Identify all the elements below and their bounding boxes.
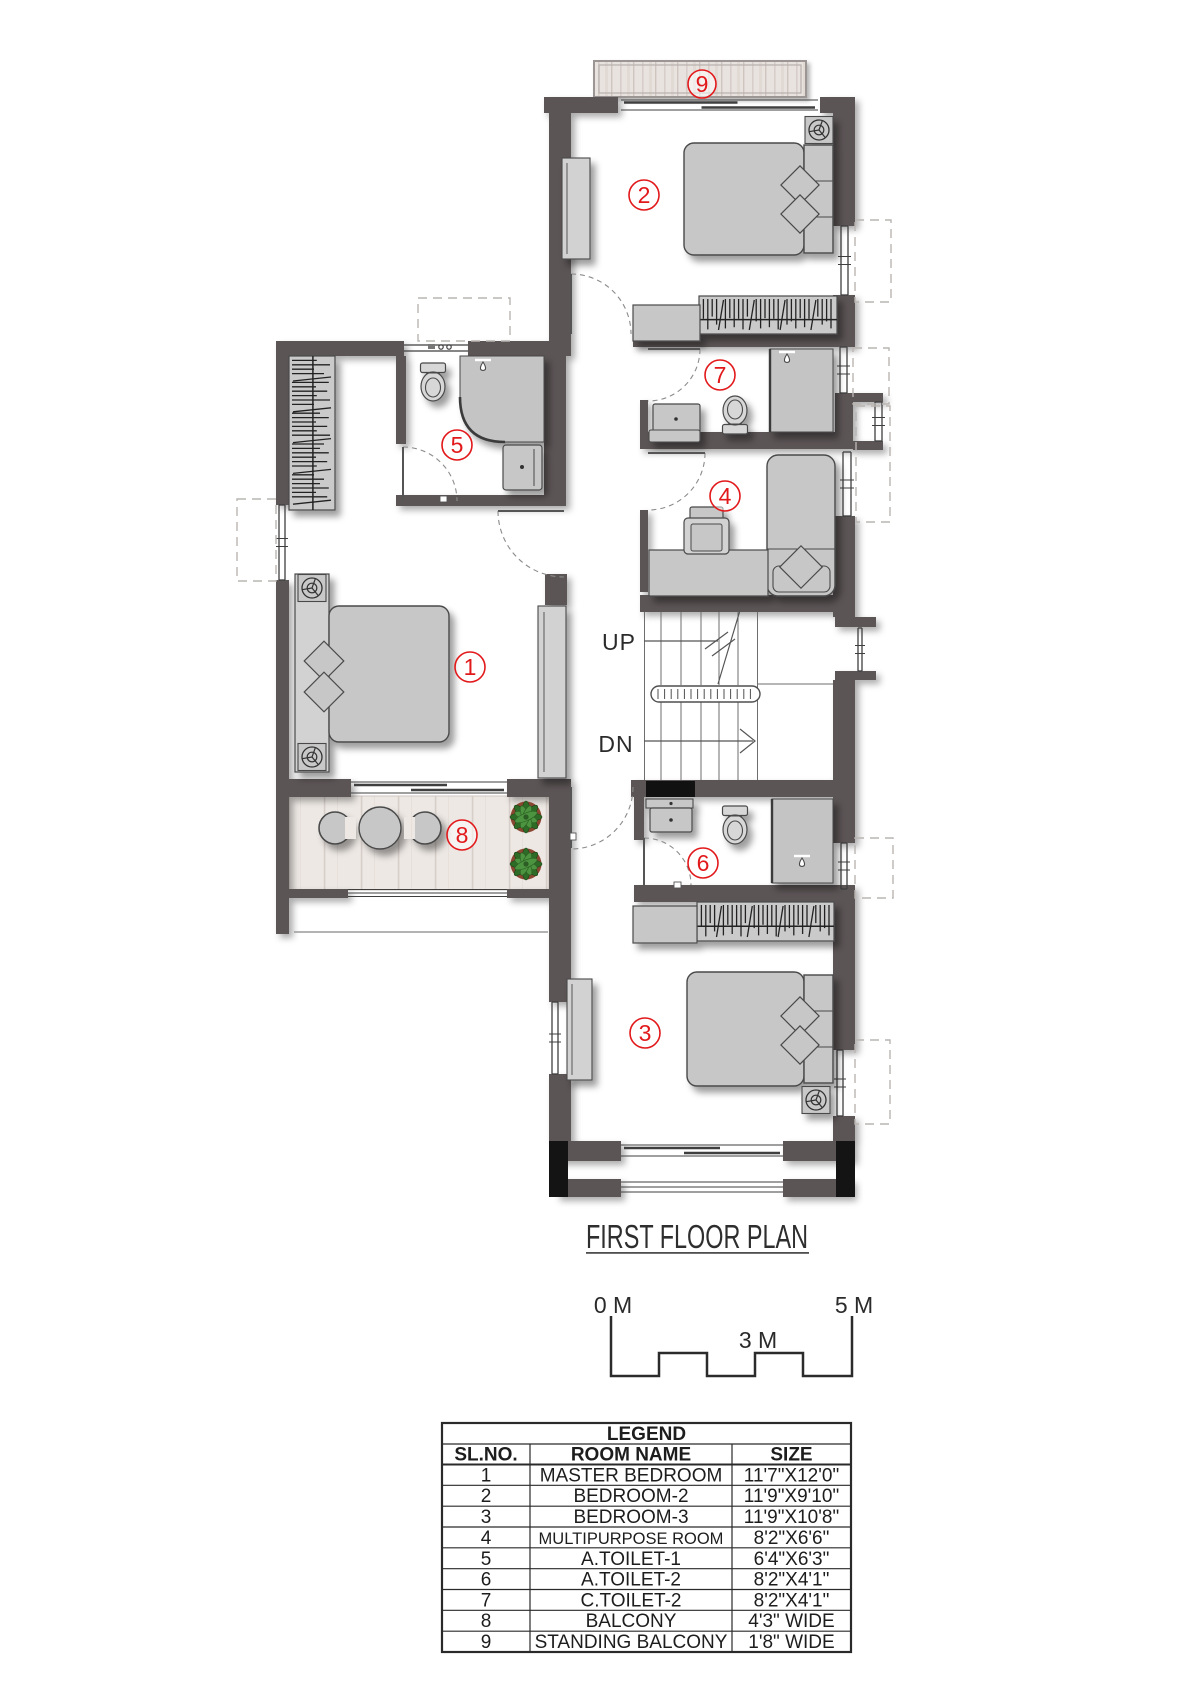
svg-text:MASTER BEDROOM: MASTER BEDROOM xyxy=(540,1465,723,1486)
svg-text:BALCONY: BALCONY xyxy=(586,1611,677,1632)
svg-text:8: 8 xyxy=(456,822,469,848)
svg-text:MULTIPURPOSE ROOM: MULTIPURPOSE ROOM xyxy=(539,1530,724,1548)
svg-text:6: 6 xyxy=(697,850,710,876)
svg-text:11'9"X10'8": 11'9"X10'8" xyxy=(744,1507,839,1528)
svg-text:9: 9 xyxy=(481,1632,492,1653)
svg-text:8'2"X4'1": 8'2"X4'1" xyxy=(754,1590,830,1611)
svg-text:LEGEND: LEGEND xyxy=(607,1424,686,1445)
svg-text:BEDROOM-2: BEDROOM-2 xyxy=(573,1486,688,1507)
svg-text:3: 3 xyxy=(639,1020,652,1046)
svg-text:8: 8 xyxy=(481,1611,492,1632)
svg-text:8'2"X6'6": 8'2"X6'6" xyxy=(754,1528,830,1549)
svg-text:SIZE: SIZE xyxy=(770,1445,812,1466)
svg-text:1: 1 xyxy=(464,654,477,680)
svg-text:2: 2 xyxy=(638,182,651,208)
svg-text:3: 3 xyxy=(481,1507,492,1528)
svg-text:SL.NO.: SL.NO. xyxy=(454,1445,517,1466)
svg-text:BEDROOM-3: BEDROOM-3 xyxy=(573,1507,688,1528)
svg-text:7: 7 xyxy=(714,362,727,388)
svg-text:A.TOILET-2: A.TOILET-2 xyxy=(581,1570,681,1591)
svg-text:4: 4 xyxy=(481,1528,492,1549)
svg-text:1: 1 xyxy=(481,1465,492,1486)
svg-text:5: 5 xyxy=(481,1549,492,1570)
svg-text:1'8" WIDE: 1'8" WIDE xyxy=(748,1632,834,1653)
svg-text:8'2"X4'1": 8'2"X4'1" xyxy=(754,1570,830,1591)
svg-text:STANDING BALCONY: STANDING BALCONY xyxy=(535,1632,728,1653)
svg-text:6: 6 xyxy=(481,1570,492,1591)
svg-text:5: 5 xyxy=(451,432,464,458)
svg-text:5 M: 5 M xyxy=(835,1292,873,1318)
svg-text:FIRST FLOOR PLAN: FIRST FLOOR PLAN xyxy=(586,1218,808,1255)
svg-text:4: 4 xyxy=(719,483,732,509)
svg-text:3 M: 3 M xyxy=(739,1327,777,1353)
svg-text:11'7"X12'0": 11'7"X12'0" xyxy=(744,1465,839,1486)
svg-text:0 M: 0 M xyxy=(594,1292,632,1318)
svg-text:6'4"X6'3": 6'4"X6'3" xyxy=(754,1549,830,1570)
svg-text:UP: UP xyxy=(602,629,636,655)
svg-text:C.TOILET-2: C.TOILET-2 xyxy=(580,1590,681,1611)
svg-text:2: 2 xyxy=(481,1486,492,1507)
svg-text:ROOM NAME: ROOM NAME xyxy=(571,1445,691,1466)
svg-text:11'9"X9'10": 11'9"X9'10" xyxy=(744,1486,839,1507)
svg-text:9: 9 xyxy=(696,71,709,97)
svg-text:4'3" WIDE: 4'3" WIDE xyxy=(748,1611,834,1632)
svg-text:7: 7 xyxy=(481,1590,492,1611)
svg-text:A.TOILET-1: A.TOILET-1 xyxy=(581,1549,681,1570)
svg-text:DN: DN xyxy=(598,731,633,757)
